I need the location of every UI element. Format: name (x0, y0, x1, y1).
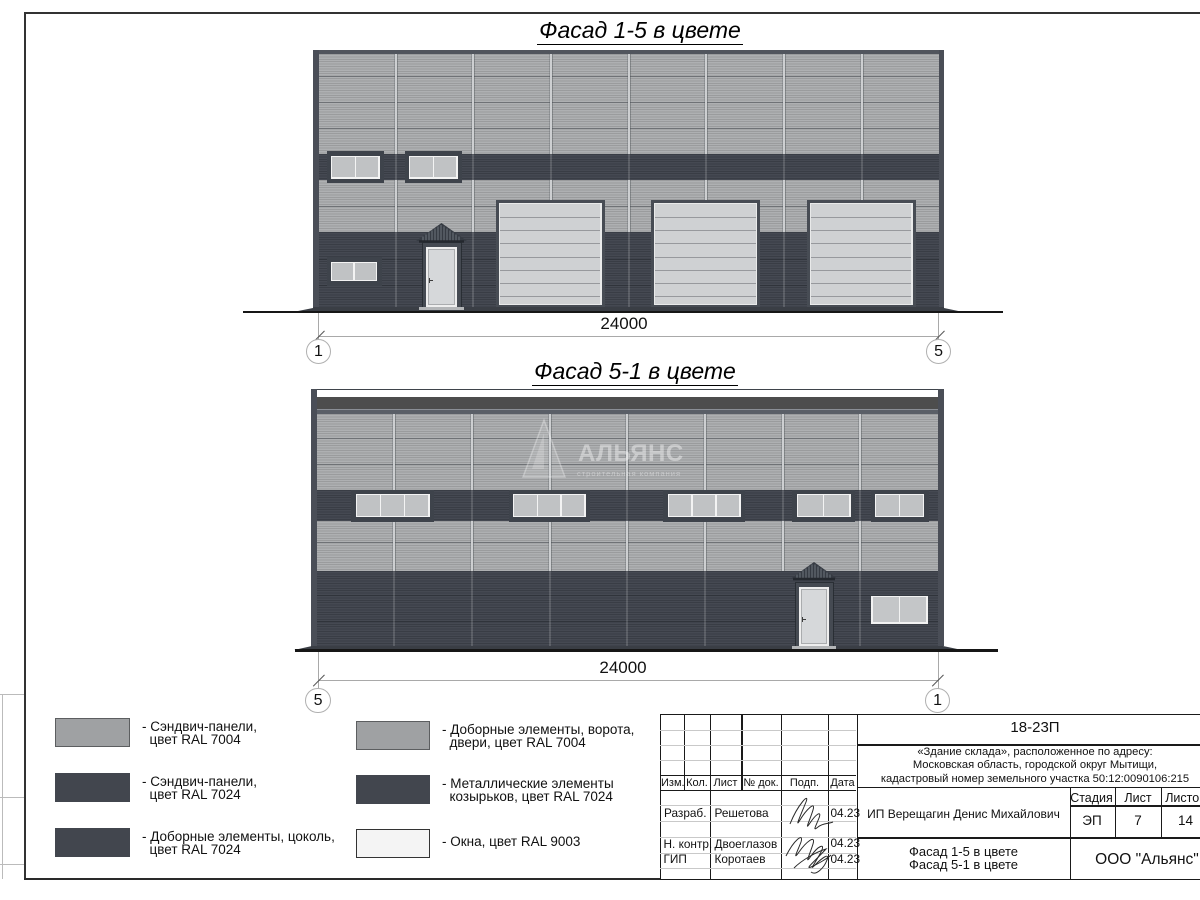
svg-text:АЛЬЯНС: АЛЬЯНС (578, 440, 684, 467)
svg-text:строительная компания: строительная компания (577, 469, 681, 478)
